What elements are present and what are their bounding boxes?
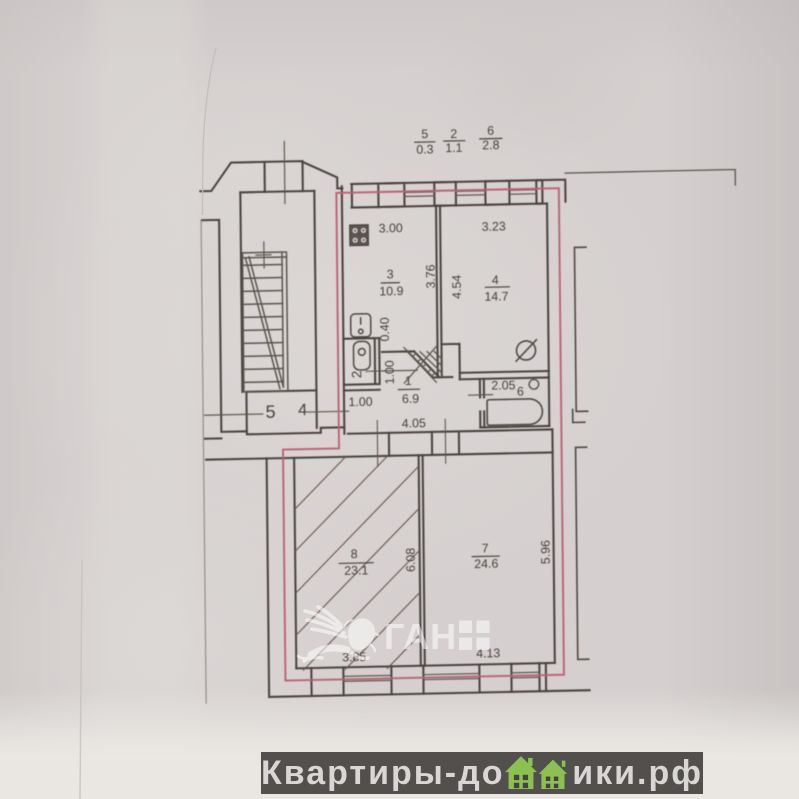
svg-text:ГАН: ГАН bbox=[384, 616, 457, 657]
